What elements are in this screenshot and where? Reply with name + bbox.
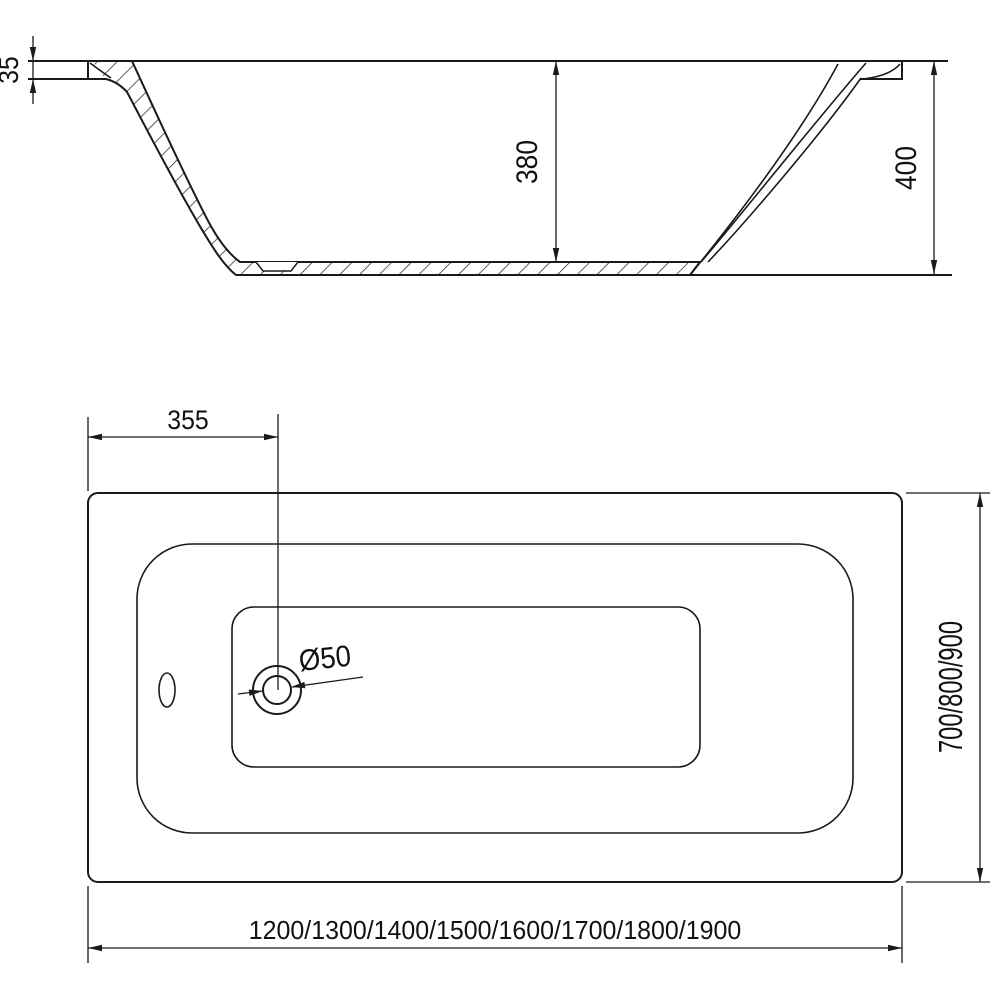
dim-width-options: 700/800/900 xyxy=(906,493,990,882)
dim-label-drain-diameter: Ø50 xyxy=(297,640,352,679)
arrowhead xyxy=(931,260,937,274)
arrowhead xyxy=(888,945,902,951)
dim-label-length-options: 1200/1300/1400/1500/1600/1700/1800/1900 xyxy=(249,917,741,946)
arrowhead xyxy=(977,868,983,882)
dim-label-rim-thickness: 35 xyxy=(0,56,24,83)
right-wall-inner-edge xyxy=(701,63,866,262)
tub-outer-profile xyxy=(28,79,952,275)
dim-label-width-options: 700/800/900 xyxy=(933,621,970,753)
dim-rim-thickness: 35 xyxy=(0,36,36,104)
arrowhead xyxy=(291,682,306,690)
plan-view: 355 Ø50 1200/1300/1400/1500/1600/1700/18… xyxy=(88,406,990,963)
drain-inner-circle xyxy=(263,676,291,704)
dim-inner-depth: 380 xyxy=(509,61,559,262)
bathtub-drawing-canvas: 35 380 400 355 xyxy=(0,0,1000,1000)
drain-outer-circle xyxy=(253,666,301,714)
arrowhead xyxy=(264,434,278,440)
arrowhead xyxy=(30,79,36,93)
arrowhead xyxy=(88,434,102,440)
inner-rim-rect xyxy=(137,544,853,833)
side-section-view: 35 380 400 xyxy=(0,36,952,275)
drain-recess-notch xyxy=(256,262,298,271)
dim-label-inner-depth: 380 xyxy=(509,140,543,184)
arrowhead xyxy=(249,688,264,696)
dim-overall-height: 400 xyxy=(888,61,937,274)
arrowhead xyxy=(30,47,36,61)
right-wall-outer-edge xyxy=(690,64,838,275)
arrowhead xyxy=(977,493,983,507)
right-wall-far-edge xyxy=(708,78,861,262)
technical-drawing-page: 35 380 400 355 xyxy=(0,0,1000,1000)
overflow-hole xyxy=(159,673,175,707)
dim-drain-offset: 355 xyxy=(88,406,278,690)
arrowhead xyxy=(553,248,559,262)
dim-drain-diameter: Ø50 xyxy=(238,640,363,696)
arrowhead xyxy=(553,61,559,75)
tub-inner-profile xyxy=(132,61,700,262)
dim-length-options: 1200/1300/1400/1500/1600/1700/1800/1900 xyxy=(88,886,902,963)
section-hatching xyxy=(93,61,700,275)
dim-label-drain-offset: 355 xyxy=(167,406,208,435)
right-rim-curl xyxy=(862,64,900,79)
arrowhead xyxy=(88,945,102,951)
arrowhead xyxy=(931,61,937,75)
outer-rim-rect xyxy=(88,493,902,882)
dim-label-overall-height: 400 xyxy=(888,146,922,190)
